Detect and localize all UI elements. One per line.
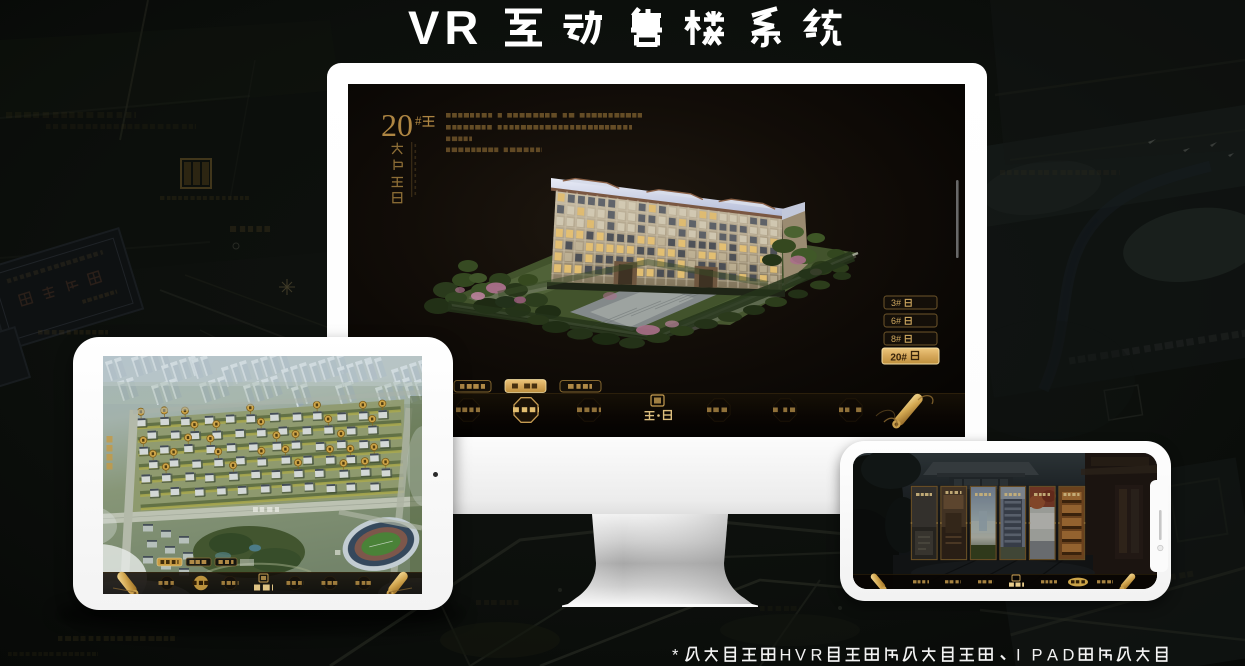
svg-text:8#: 8# — [891, 334, 901, 344]
svg-text:D: D — [1063, 647, 1075, 665]
svg-text:6#: 6# — [891, 316, 901, 326]
svg-text:20: 20 — [381, 107, 413, 143]
svg-text:#: # — [415, 113, 422, 128]
svg-text:20#: 20# — [890, 353, 907, 364]
svg-text:VR: VR — [408, 2, 483, 52]
svg-text:A: A — [1047, 647, 1058, 665]
svg-text:3#: 3# — [891, 298, 901, 308]
svg-text:*: * — [672, 647, 679, 665]
svg-text:V: V — [795, 647, 806, 665]
svg-text:P: P — [1032, 647, 1043, 665]
svg-text:R: R — [811, 647, 823, 665]
svg-text:I: I — [1016, 647, 1021, 665]
svg-text:H: H — [780, 647, 792, 665]
